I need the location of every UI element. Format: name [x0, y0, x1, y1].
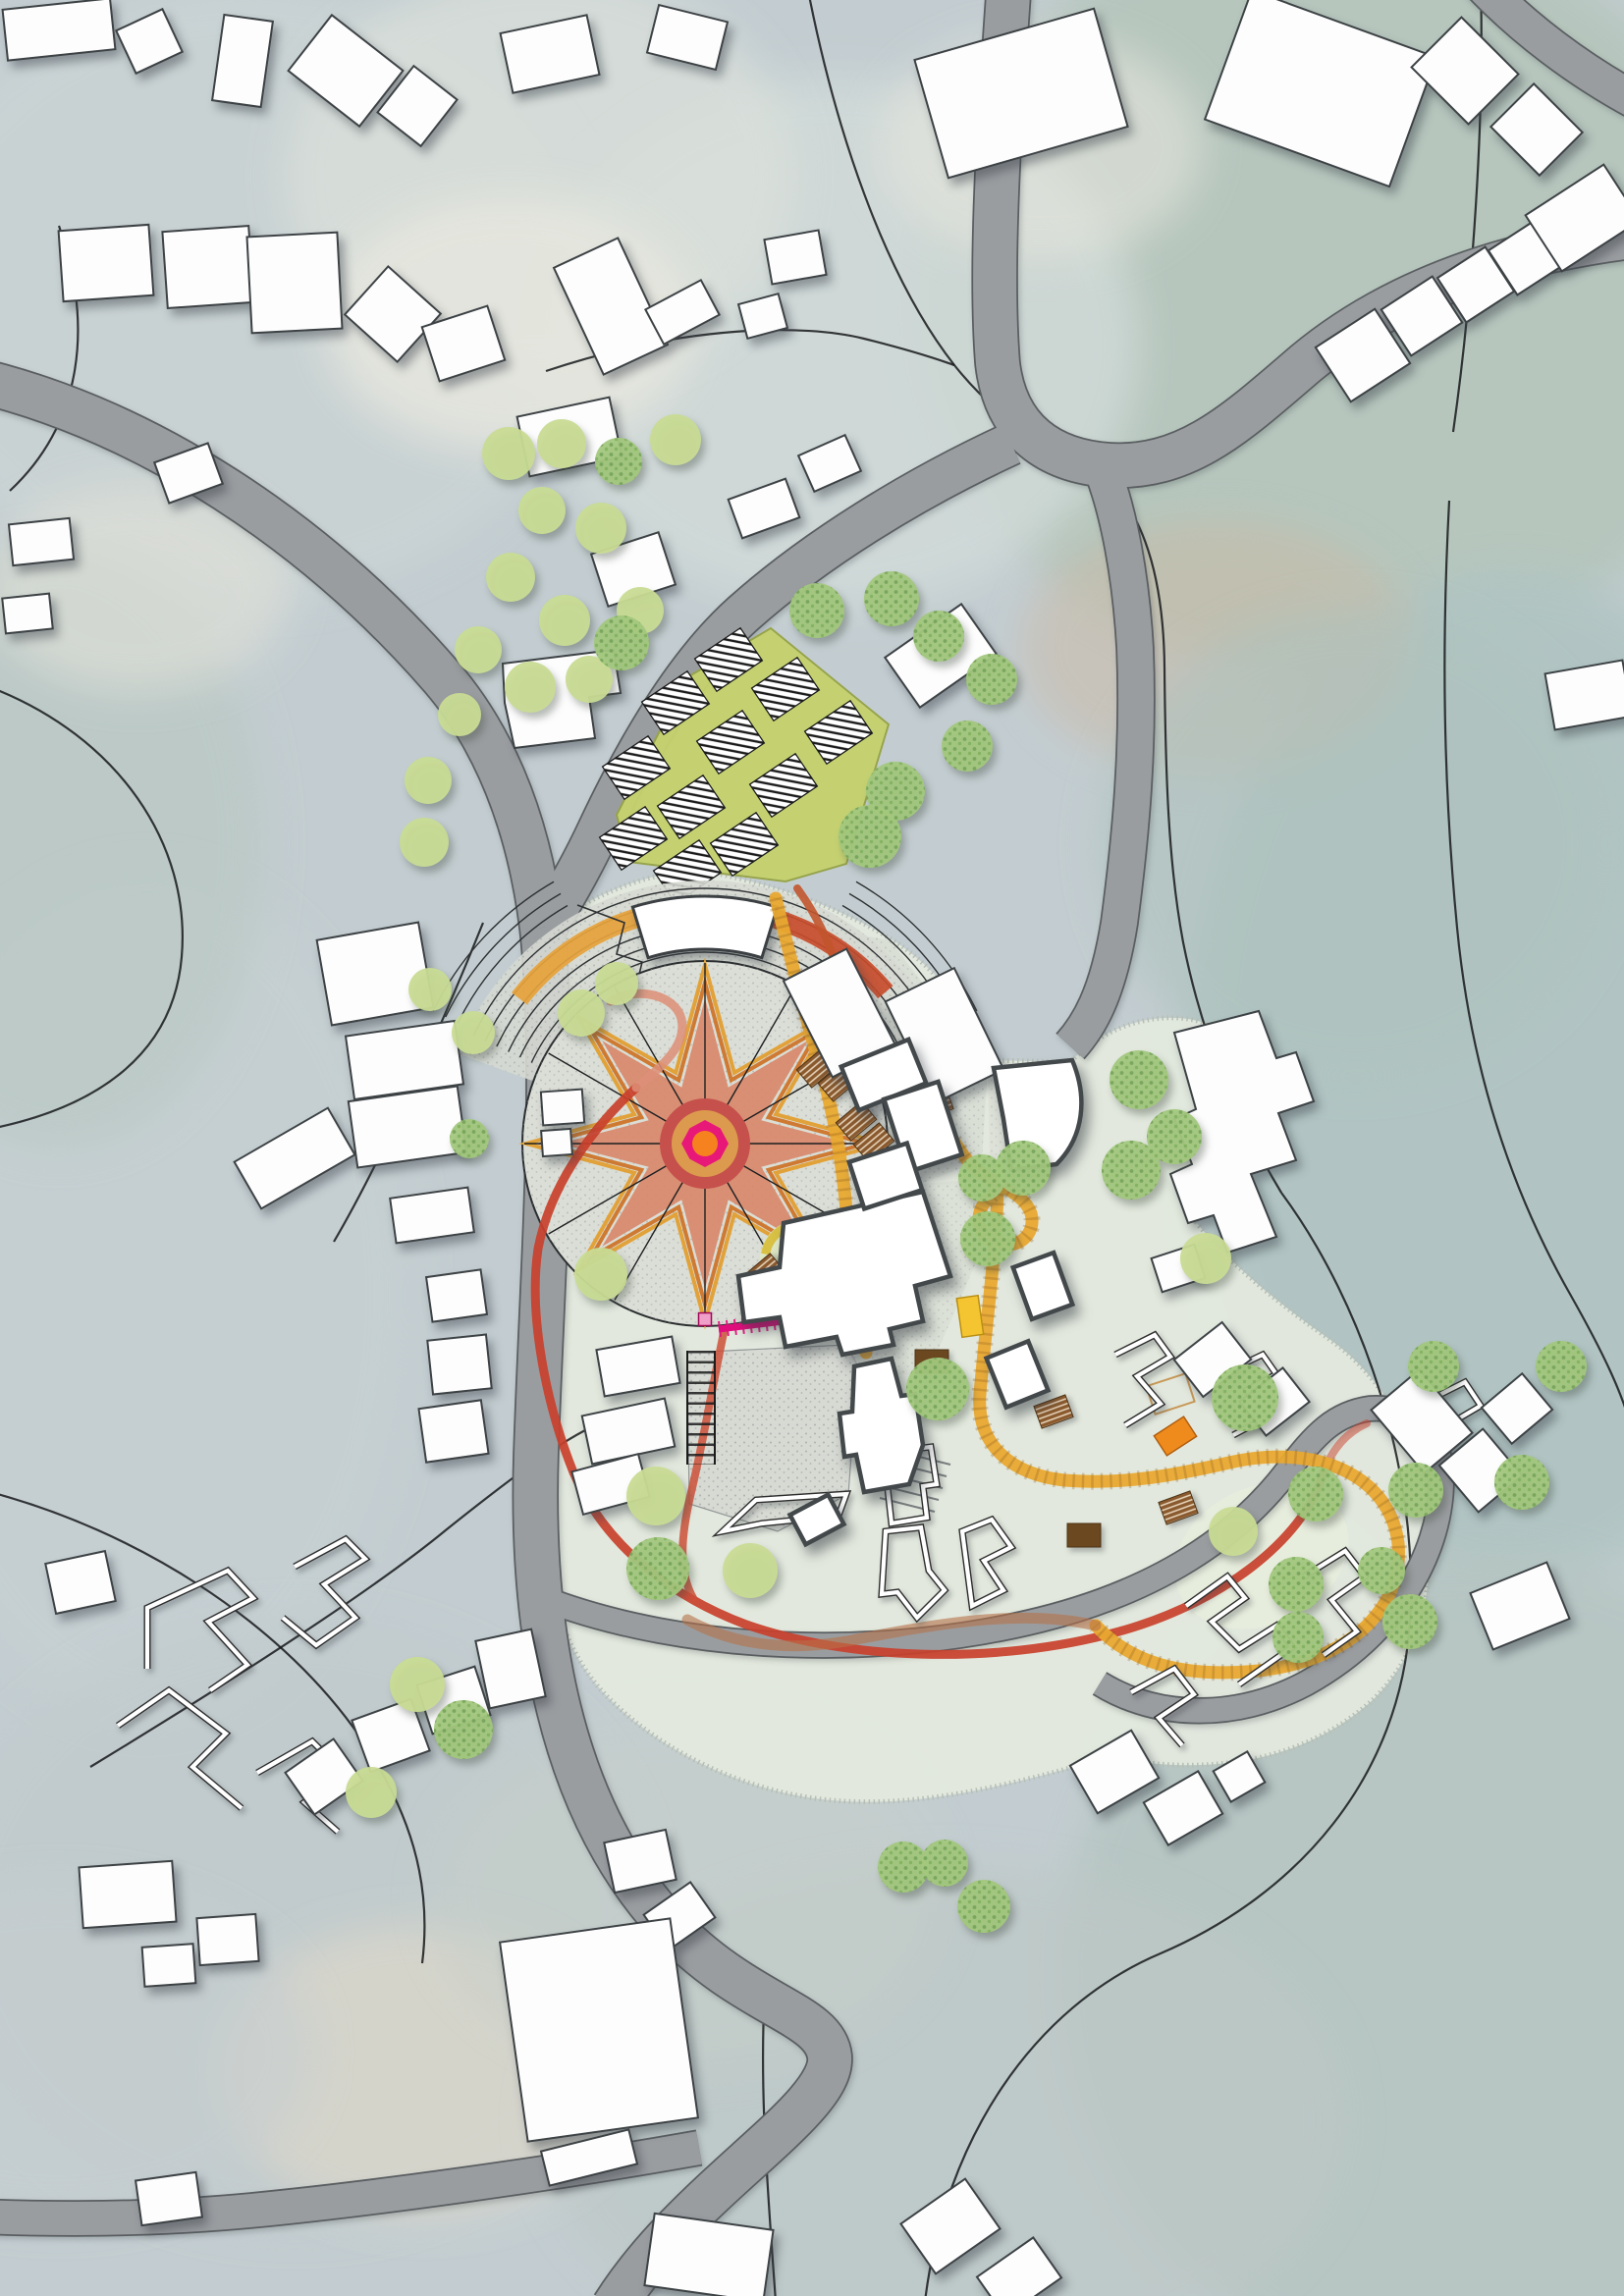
tree-flat	[537, 419, 586, 468]
tree-flat	[400, 818, 449, 867]
tree-flat	[1180, 1233, 1231, 1284]
building	[500, 1918, 698, 2141]
building	[764, 230, 826, 284]
tree-flat	[595, 962, 638, 1005]
tree-flat	[1209, 1507, 1258, 1556]
tree-foliage-texture	[595, 438, 642, 485]
building	[142, 1944, 196, 1987]
tree-flat	[405, 757, 452, 804]
tree-foliage-texture	[864, 571, 919, 626]
tree-foliage-texture	[1388, 1463, 1443, 1518]
tree-foliage-texture	[878, 1842, 929, 1893]
building	[2, 594, 53, 634]
building	[196, 1914, 258, 1965]
masterplan-map	[0, 0, 1624, 2296]
building	[390, 1188, 474, 1244]
tree-foliage-texture	[450, 1119, 489, 1158]
tree-flat	[650, 414, 701, 465]
tree-flat	[482, 427, 535, 480]
tree-flat	[452, 1011, 495, 1054]
tree-foliage-texture	[921, 1840, 968, 1887]
tree-foliage-texture	[789, 583, 844, 638]
tree-flat	[626, 1467, 685, 1525]
tree-foliage-texture	[1147, 1109, 1202, 1164]
site-plan-canvas	[0, 0, 1624, 2296]
tree-flat	[518, 487, 566, 534]
building	[162, 226, 253, 308]
tree-foliage-texture	[906, 1358, 969, 1420]
tree-foliage-texture	[913, 611, 964, 662]
tree-foliage-texture	[1382, 1594, 1437, 1649]
tree-flat	[438, 693, 481, 736]
tree-foliage-texture	[1288, 1467, 1343, 1522]
tree-foliage-texture	[1358, 1547, 1405, 1594]
tree-flat	[723, 1543, 778, 1598]
gate-marker	[956, 1296, 983, 1338]
tree-foliage-texture	[594, 615, 649, 670]
stage-canopy	[632, 896, 777, 958]
building	[59, 225, 154, 301]
tree-flat	[574, 1248, 627, 1301]
building	[427, 1335, 491, 1395]
tree-foliage-texture	[1536, 1341, 1587, 1392]
tree-flat	[455, 626, 502, 673]
tree-flat	[486, 553, 535, 602]
planting-bed	[1067, 1523, 1101, 1547]
building	[418, 1400, 488, 1462]
tree-flat	[505, 662, 556, 713]
tree-flat	[539, 595, 590, 646]
building	[135, 2172, 202, 2225]
tree-foliage-texture	[957, 1880, 1010, 1933]
building	[212, 15, 273, 107]
tree-foliage-texture	[966, 654, 1017, 705]
tree-flat	[346, 1767, 397, 1818]
tree-foliage-texture	[1110, 1050, 1168, 1109]
tree-foliage-texture	[1408, 1341, 1459, 1392]
building	[79, 1861, 176, 1928]
building	[349, 1087, 466, 1168]
building	[246, 233, 342, 334]
tree-foliage-texture	[1272, 1612, 1324, 1663]
tree-flat	[390, 1657, 445, 1712]
planting-bed-hatch	[1067, 1523, 1101, 1547]
building	[426, 1269, 487, 1321]
tree-foliage-texture	[1269, 1557, 1324, 1612]
tree-foliage-texture	[942, 721, 993, 772]
building	[9, 518, 74, 565]
building	[541, 1129, 572, 1156]
pink-square-marker	[699, 1313, 712, 1326]
tree-foliage-texture	[434, 1700, 493, 1759]
tree-foliage-texture	[1212, 1364, 1278, 1431]
tree-foliage-texture	[626, 1537, 689, 1600]
tree-flat	[558, 989, 605, 1037]
aerial-patch	[1100, 609, 1610, 1080]
building	[3, 0, 116, 61]
tree-flat	[408, 968, 452, 1011]
building	[541, 1090, 584, 1126]
tree-foliage-texture	[960, 1211, 1015, 1266]
tree-foliage-texture	[839, 805, 901, 868]
tree-foliage-texture	[996, 1141, 1051, 1196]
core-center	[692, 1131, 718, 1156]
tree-foliage-texture	[1494, 1455, 1549, 1510]
tree-flat	[575, 503, 626, 554]
